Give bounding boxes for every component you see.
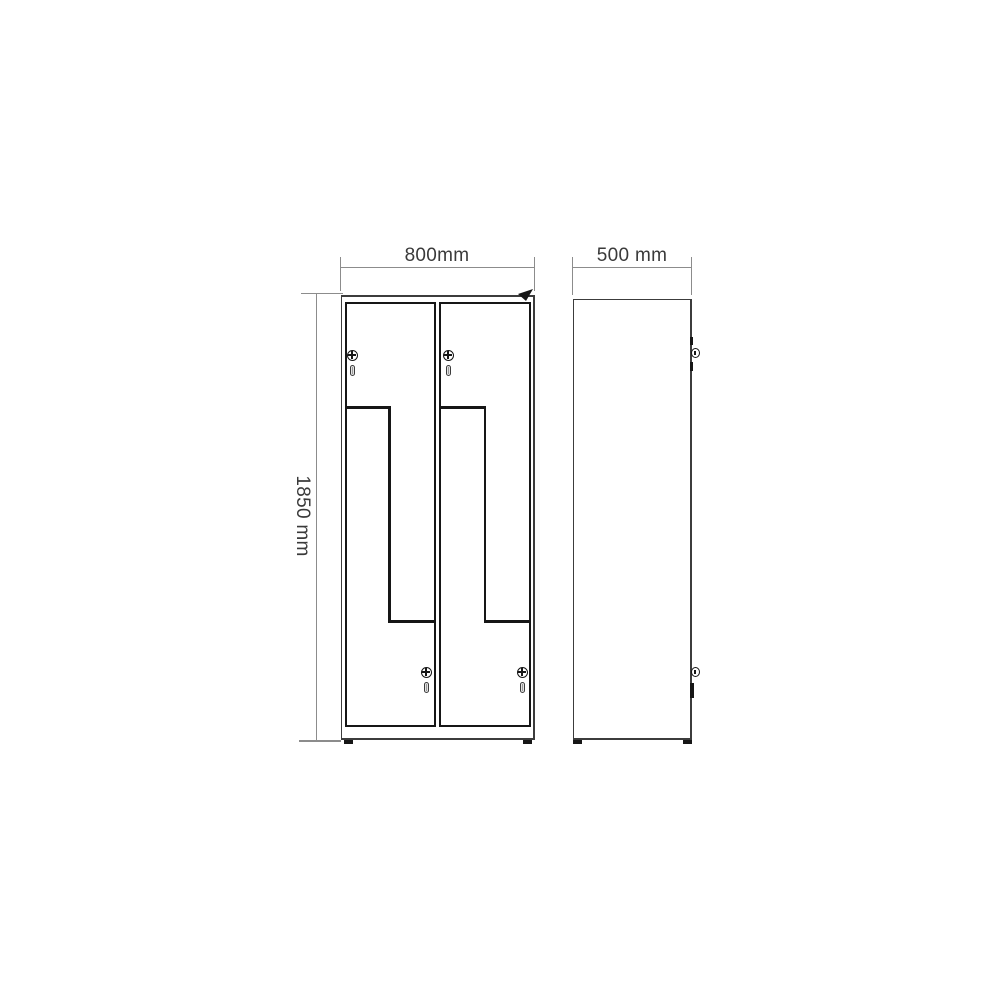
depth-dim-extension-left bbox=[572, 257, 573, 295]
depth-dimension-label: 500 mm bbox=[582, 246, 682, 266]
front-foot-right bbox=[523, 740, 532, 744]
cam-lock-icon-lower-right bbox=[517, 667, 528, 678]
cam-lock-icon-upper-right bbox=[443, 350, 454, 361]
height-dimension-label: 1850 mm bbox=[292, 471, 312, 561]
door-handle-slot-upper-right bbox=[446, 365, 451, 376]
left-z-split-vertical bbox=[388, 406, 391, 622]
door-handle-slot-lower-right bbox=[520, 682, 525, 693]
height-dim-extension-bottom bbox=[299, 740, 341, 741]
front-left-z-door-pair bbox=[345, 302, 436, 727]
side-foot-left bbox=[573, 740, 582, 744]
side-view-body-outline bbox=[573, 299, 692, 740]
height-dim-extension-top bbox=[301, 293, 343, 294]
door-handle-slot-upper-left bbox=[350, 365, 355, 376]
side-lock-bolt-lower bbox=[690, 683, 694, 698]
depth-dim-extension-right bbox=[691, 257, 692, 295]
cam-lock-icon-upper-left bbox=[347, 350, 358, 361]
technical-drawing-canvas: 800mm 500 mm 1850 mm bbox=[0, 0, 1000, 1000]
width-dim-extension-right bbox=[534, 257, 535, 291]
depth-dim-line bbox=[573, 267, 692, 268]
width-dim-extension-left bbox=[340, 257, 341, 291]
height-dim-line bbox=[316, 293, 317, 741]
front-foot-left bbox=[344, 740, 353, 744]
left-z-split-step-bottom bbox=[388, 620, 436, 623]
cam-lock-icon-lower-left bbox=[421, 667, 432, 678]
side-foot-right bbox=[683, 740, 692, 744]
right-z-split-step-top bbox=[440, 406, 485, 409]
width-dimension-label: 800mm bbox=[387, 246, 487, 266]
side-lock-knob-upper bbox=[691, 348, 700, 358]
side-lock-knob-lower bbox=[691, 667, 700, 677]
side-lock-tick-upper-bottom bbox=[690, 362, 693, 371]
corner-arrowhead-icon bbox=[516, 288, 534, 302]
right-z-split-step-bottom bbox=[484, 620, 531, 623]
width-dim-line bbox=[341, 267, 535, 268]
right-z-split-vertical bbox=[484, 406, 487, 622]
side-lock-tick-upper-top bbox=[690, 337, 693, 345]
left-z-split-step-top bbox=[346, 406, 390, 409]
door-handle-slot-lower-left bbox=[424, 682, 429, 693]
